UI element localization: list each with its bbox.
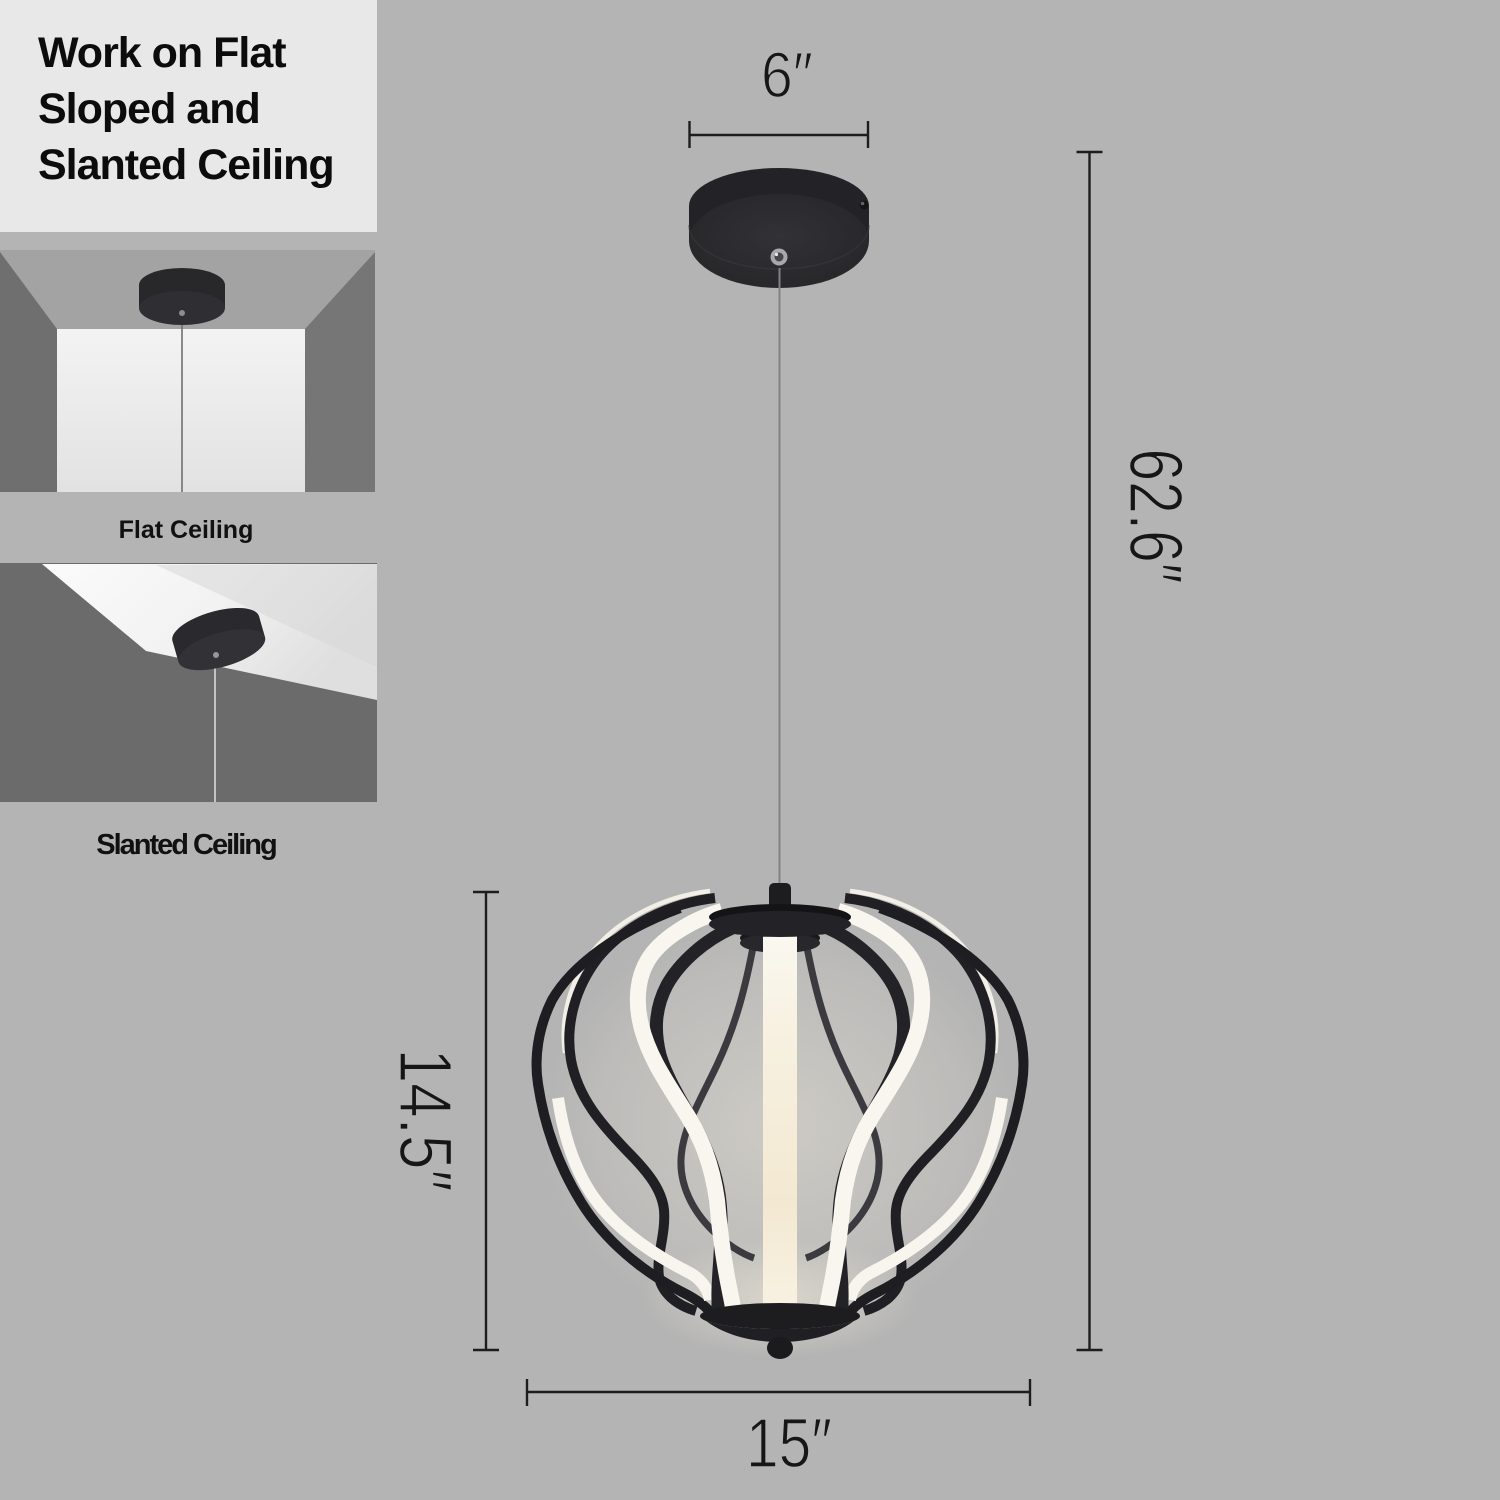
svg-text:6″: 6″: [761, 39, 813, 111]
svg-text:14.5″: 14.5″: [384, 1049, 467, 1192]
svg-text:Flat Ceiling: Flat Ceiling: [119, 516, 254, 544]
svg-text:15″: 15″: [746, 1404, 832, 1482]
svg-text:Slanted Ceiling: Slanted Ceiling: [38, 141, 334, 189]
svg-text:Slanted Ceiling: Slanted Ceiling: [96, 829, 276, 861]
svg-text:Work on Flat: Work on Flat: [38, 29, 286, 77]
svg-text:Sloped and: Sloped and: [38, 85, 260, 133]
svg-text:62.6″: 62.6″: [1114, 449, 1198, 584]
